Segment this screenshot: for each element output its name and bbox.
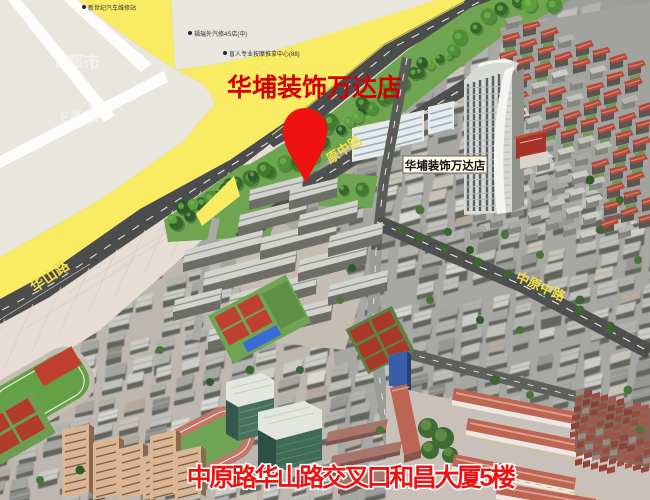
svg-text:E都市: E都市	[55, 52, 100, 72]
svg-text:中原路华山路交叉口和昌大厦5楼: 中原路华山路交叉口和昌大厦5楼	[187, 463, 516, 492]
svg-text:E都市: E都市	[60, 108, 100, 126]
svg-text:华埔装饰万达店: 华埔装饰万达店	[405, 159, 486, 173]
svg-text:盲人专业按摩推拿中心(88): 盲人专业按摩推拿中心(88)	[229, 50, 300, 58]
svg-text:华埔装饰万达店: 华埔装饰万达店	[227, 73, 402, 102]
svg-text:福瑞外汽修4S店(中): 福瑞外汽修4S店(中)	[194, 30, 247, 38]
svg-text:新世纪汽车维修站: 新世纪汽车维修站	[88, 4, 136, 12]
